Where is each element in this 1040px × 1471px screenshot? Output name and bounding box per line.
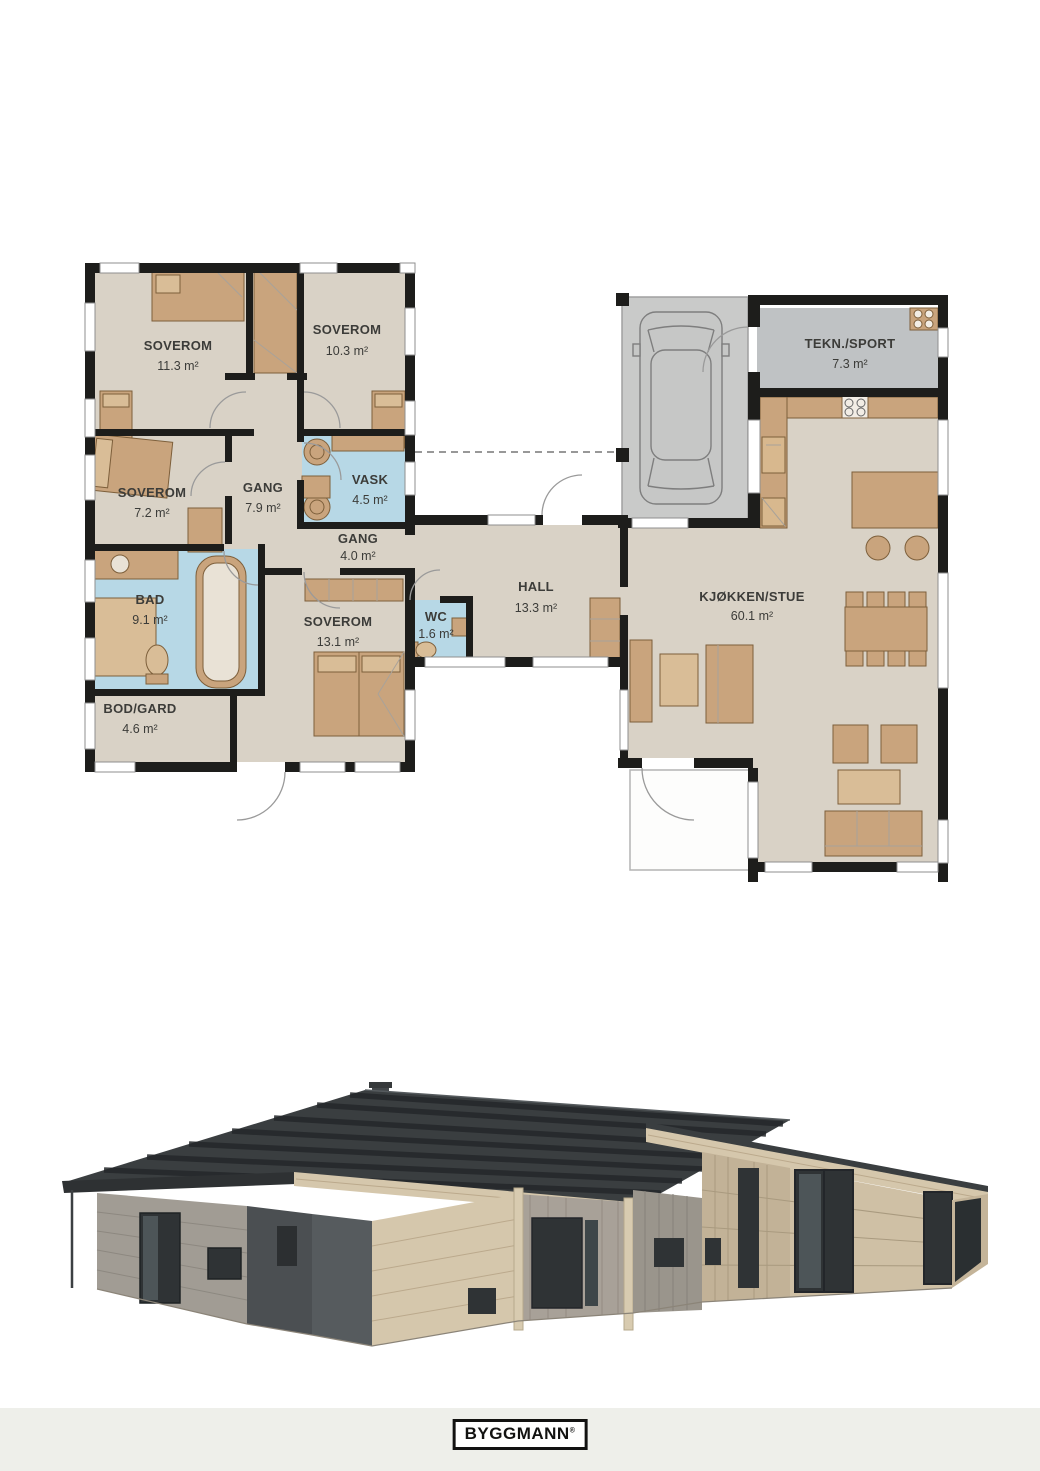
- sofa: [825, 811, 922, 856]
- pillow: [375, 394, 402, 407]
- brochure-page: SOVEROM 11.3 m² SOVEROM 10.3 m² SOVEROM …: [0, 0, 1040, 1471]
- window: [705, 1238, 721, 1265]
- room-area: 4.0 m²: [340, 549, 375, 563]
- room-name: GANG: [338, 531, 378, 546]
- glass-pane: [799, 1174, 821, 1288]
- window: [208, 1248, 241, 1279]
- pillow: [362, 656, 400, 672]
- cabinet: [302, 476, 330, 498]
- corner-window: [924, 1192, 952, 1284]
- entrance-door: [532, 1218, 582, 1308]
- window: [277, 1226, 297, 1266]
- toilet: [416, 642, 436, 658]
- window: [468, 1288, 496, 1314]
- room-area: 10.3 m²: [326, 344, 368, 358]
- exterior-door-gap: [237, 762, 285, 772]
- counter: [332, 435, 404, 451]
- room-area: 11.3 m²: [157, 359, 198, 373]
- front-wall: [372, 1194, 518, 1346]
- vanity: [94, 549, 178, 579]
- dark-panel-side: [312, 1214, 372, 1346]
- post: [616, 293, 629, 306]
- room-area: 4.6 m²: [122, 722, 157, 736]
- sink-unit: [762, 437, 785, 473]
- sideboard: [630, 640, 652, 722]
- room-name: SOVEROM: [144, 338, 213, 353]
- post: [616, 448, 629, 462]
- sink: [452, 618, 468, 636]
- stool: [866, 536, 890, 560]
- glass-pane: [143, 1216, 158, 1300]
- pillow: [156, 275, 180, 293]
- coffee-table: [838, 770, 900, 804]
- room-name: VASK: [352, 472, 389, 487]
- tv-table: [660, 654, 698, 706]
- room-area: 7.2 m²: [134, 506, 169, 520]
- room-name: BOD/GARD: [103, 701, 176, 716]
- vent-unit-icon: [910, 308, 938, 330]
- house-3d-render: [62, 1082, 988, 1346]
- wardrobe-row: [305, 579, 403, 601]
- footer-band: BYGGMANN®: [0, 1408, 1040, 1471]
- room-name: SOVEROM: [118, 485, 187, 500]
- room-area: 9.1 m²: [132, 613, 167, 627]
- door-sidelight: [585, 1220, 598, 1306]
- terrace-door-gap: [642, 758, 694, 768]
- window: [654, 1238, 684, 1267]
- room-name: KJØKKEN/STUE: [699, 589, 804, 604]
- room-name: HALL: [518, 579, 554, 594]
- room-name: SOVEROM: [313, 322, 382, 337]
- room-area: 4.5 m²: [352, 493, 387, 507]
- stool: [905, 536, 929, 560]
- floor-plan: SOVEROM 11.3 m² SOVEROM 10.3 m² SOVEROM …: [85, 263, 948, 882]
- pillow: [103, 394, 129, 407]
- toilet: [146, 645, 168, 675]
- logo-text: BYGGMANN: [465, 1424, 570, 1443]
- sofa: [706, 645, 753, 723]
- hall-bench: [590, 598, 620, 662]
- armchair: [833, 725, 868, 763]
- room-area: 7.3 m²: [832, 357, 867, 371]
- room-area: 13.1 m²: [317, 635, 359, 649]
- porch-post: [514, 1188, 523, 1330]
- entrance-door-gap: [543, 515, 582, 525]
- dark-panel-front: [247, 1206, 312, 1335]
- tall-window: [738, 1168, 759, 1288]
- room-area: 1.6 m²: [418, 627, 453, 641]
- registered-mark: ®: [570, 1427, 576, 1434]
- room-name: BAD: [135, 592, 164, 607]
- room-name: TEKN./SPORT: [805, 336, 896, 351]
- car-icon: [633, 312, 729, 504]
- porch-post: [624, 1198, 633, 1330]
- room-name: SOVEROM: [304, 614, 373, 629]
- page-artwork: SOVEROM 11.3 m² SOVEROM 10.3 m² SOVEROM …: [0, 0, 1040, 1471]
- byggmann-logo: BYGGMANN®: [453, 1419, 588, 1450]
- kitchen-island: [852, 472, 938, 528]
- room-name: WC: [425, 609, 448, 624]
- room-area: 60.1 m²: [731, 609, 773, 623]
- armchair: [881, 725, 917, 763]
- dining-table: [845, 607, 927, 651]
- room-name: GANG: [243, 480, 283, 495]
- room-area: 13.3 m²: [515, 601, 557, 615]
- chimney-cap: [369, 1082, 392, 1088]
- toilet-tank: [146, 674, 168, 684]
- room-area: 7.9 m²: [245, 501, 280, 515]
- pillow: [318, 656, 356, 672]
